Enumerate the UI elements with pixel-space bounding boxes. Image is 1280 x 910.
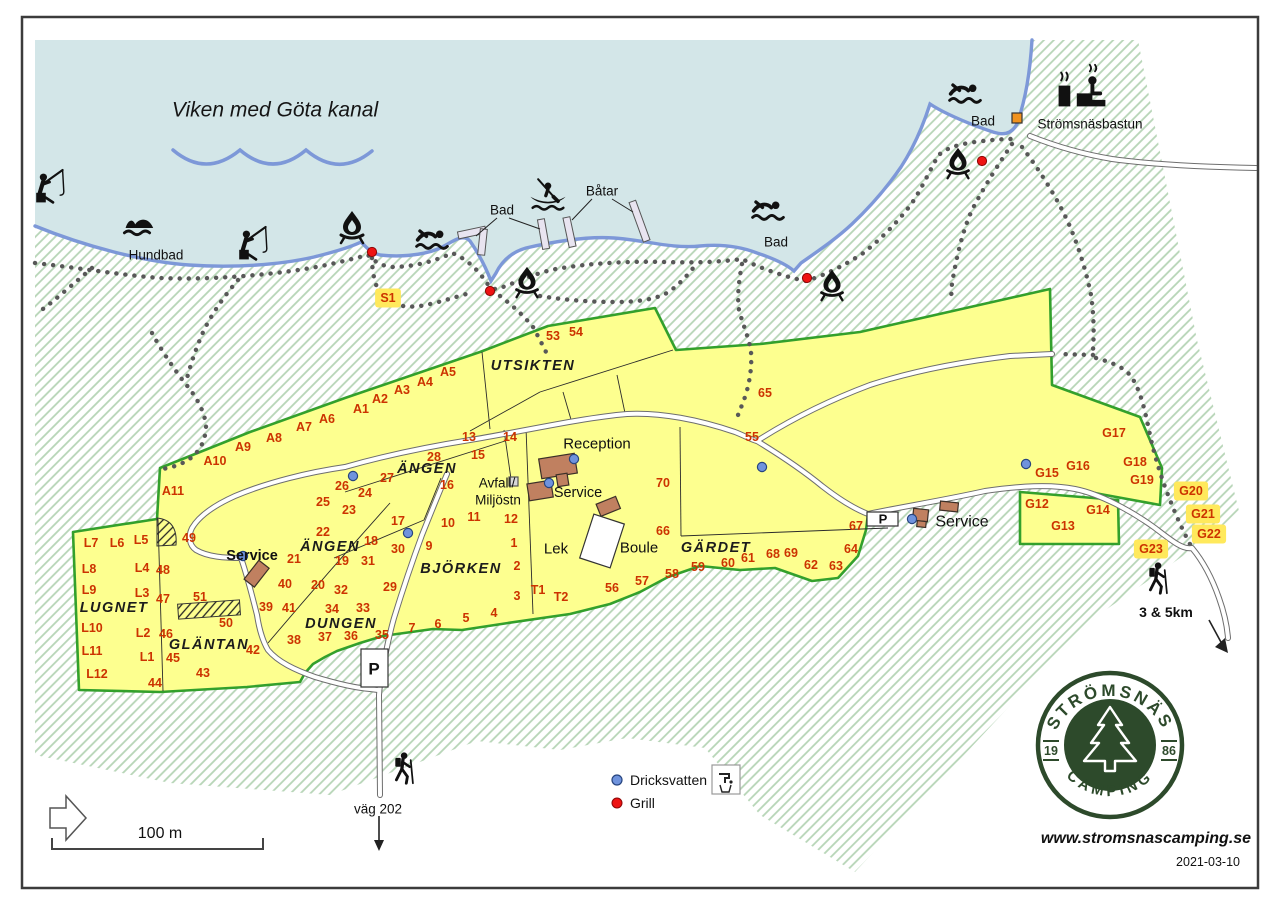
site-label-59: 59 — [691, 560, 705, 574]
scale-label: 100 m — [138, 825, 182, 842]
site-label-14: 14 — [503, 430, 517, 444]
site-label-38: 38 — [287, 633, 301, 647]
place-label: Avfall/ — [479, 476, 516, 491]
site-label-50: 50 — [219, 616, 233, 630]
site-label-55: 55 — [745, 430, 759, 444]
site-label-53: 53 — [546, 329, 560, 343]
legend-drinking-water-label: Dricksvatten — [630, 772, 707, 788]
site-label-56: 56 — [605, 581, 619, 595]
site-label-G20: G20 — [1179, 484, 1203, 498]
site-label-L5: L5 — [134, 533, 149, 547]
site-label-9: 9 — [426, 539, 433, 553]
site-label-62: 62 — [804, 558, 818, 572]
site-label-37: 37 — [318, 630, 332, 644]
site-label-25: 25 — [316, 495, 330, 509]
place-label: 3 & 5km — [1139, 604, 1193, 620]
place-label: Reception — [563, 436, 631, 453]
website-label: www.stromsnascamping.se — [1041, 830, 1251, 847]
site-label-33: 33 — [356, 601, 370, 615]
water-title: Viken med Göta kanal — [172, 99, 380, 122]
site-label-G19: G19 — [1130, 473, 1154, 487]
site-label-48: 48 — [156, 563, 170, 577]
date-label: 2021-03-10 — [1176, 855, 1240, 869]
site-label-A10: A10 — [204, 454, 227, 468]
site-label-70: 70 — [656, 476, 670, 490]
site-label-G17: G17 — [1102, 426, 1126, 440]
site-label-11: 11 — [467, 510, 480, 524]
site-label-40: 40 — [278, 577, 292, 591]
site-label-10: 10 — [441, 516, 455, 530]
site-label-L9: L9 — [82, 583, 97, 597]
site-label-1: 1 — [511, 536, 518, 550]
legend-drinking-water-dot — [612, 775, 622, 785]
site-label-64: 64 — [844, 542, 858, 556]
site-label-31: 31 — [361, 554, 375, 568]
site-label-51: 51 — [193, 590, 207, 604]
site-label-63: 63 — [829, 559, 843, 573]
site-label-68: 68 — [766, 547, 780, 561]
site-label-15: 15 — [471, 448, 485, 462]
site-label-58: 58 — [665, 567, 679, 581]
site-label-12: 12 — [504, 512, 518, 526]
drinking-water-marker — [757, 462, 766, 471]
site-label-19: 19 — [335, 554, 349, 568]
drinking-water-marker — [569, 454, 578, 463]
site-label-28: 28 — [427, 450, 441, 464]
bastun-marker — [1012, 113, 1022, 123]
site-label-36: 36 — [344, 629, 358, 643]
site-label-21: 21 — [287, 552, 301, 566]
place-label: Boule — [620, 540, 658, 557]
place-label: Lek — [544, 541, 569, 558]
drinking-water-marker — [403, 528, 412, 537]
area-label-LUGNET: LUGNET — [80, 600, 149, 616]
drinking-water-marker — [1021, 459, 1030, 468]
site-label-17: 17 — [391, 514, 405, 528]
logo-year-right: 86 — [1162, 744, 1176, 758]
site-label-T2: T2 — [554, 590, 569, 604]
place-label: P — [879, 512, 888, 527]
site-label-L11: L11 — [82, 644, 103, 658]
place-label: Bad — [971, 114, 995, 129]
site-label-A8: A8 — [266, 431, 282, 445]
place-label: Bad — [490, 203, 514, 218]
logo-year-left: 19 — [1044, 744, 1058, 758]
site-label-20: 20 — [311, 578, 325, 592]
place-label: väg 202 — [354, 802, 402, 817]
site-label-A7: A7 — [296, 420, 312, 434]
site-label-66: 66 — [656, 524, 670, 538]
site-label-32: 32 — [334, 583, 348, 597]
site-label-18: 18 — [364, 534, 378, 548]
site-label-G12: G12 — [1025, 497, 1049, 511]
site-label-39: 39 — [259, 600, 273, 614]
site-label-L3: L3 — [135, 586, 150, 600]
place-label: Hundbad — [129, 248, 184, 263]
site-label-30: 30 — [391, 542, 405, 556]
site-label-2: 2 — [514, 559, 521, 573]
legend-grill-label: Grill — [630, 795, 655, 811]
site-label-3: 3 — [514, 589, 521, 603]
site-label-43: 43 — [196, 666, 210, 680]
site-label-61: 61 — [741, 551, 755, 565]
site-label-L4: L4 — [135, 561, 150, 575]
site-label-22: 22 — [316, 525, 330, 539]
site-label-G23: G23 — [1139, 542, 1163, 556]
site-label-42: 42 — [246, 643, 260, 657]
campground-map-page: UTSIKTENÄNGENÄNGENLUGNETGLÄNTANDUNGENBJÖ… — [0, 0, 1280, 905]
site-label-47: 47 — [156, 592, 170, 606]
site-label-16: 16 — [440, 478, 454, 492]
site-label-57: 57 — [635, 574, 649, 588]
place-label: Service — [226, 548, 278, 564]
area-label-UTSIKTEN: UTSIKTEN — [491, 358, 576, 374]
site-label-34: 34 — [325, 602, 339, 616]
site-label-A2: A2 — [372, 392, 388, 406]
site-label-13: 13 — [462, 430, 476, 444]
grill-marker — [977, 156, 986, 165]
area-label-ÄNGEN: ÄNGEN — [299, 538, 360, 555]
site-label-L1: L1 — [140, 650, 155, 664]
service-building-right-3 — [917, 521, 927, 528]
place-label: Service — [935, 514, 988, 531]
site-label-26: 26 — [335, 479, 349, 493]
stromsnas-camping-logo: STRÖMSNÄS CAMPING 19 86 — [1038, 673, 1182, 817]
site-label-69: 69 — [784, 546, 798, 560]
site-label-G16: G16 — [1066, 459, 1090, 473]
site-label-41: 41 — [282, 601, 296, 615]
site-label-G13: G13 — [1051, 519, 1075, 533]
site-label-4: 4 — [491, 606, 498, 620]
site-label-46: 46 — [159, 627, 173, 641]
area-label-GLÄNTAN: GLÄNTAN — [169, 636, 249, 653]
site-label-G18: G18 — [1123, 455, 1147, 469]
site-label-A5: A5 — [440, 365, 456, 379]
site-label-L6: L6 — [110, 536, 125, 550]
grill-marker — [802, 273, 811, 282]
grill-marker — [367, 247, 376, 256]
site-label-6: 6 — [435, 617, 442, 631]
drinking-water-marker — [348, 471, 357, 480]
site-label-45: 45 — [166, 651, 180, 665]
site-label-A6: A6 — [319, 412, 335, 426]
site-label-G14: G14 — [1086, 503, 1110, 517]
site-label-S1: S1 — [380, 291, 395, 305]
site-label-L8: L8 — [82, 562, 97, 576]
grill-marker — [485, 286, 494, 295]
site-label-27: 27 — [380, 471, 394, 485]
site-label-L12: L12 — [86, 667, 108, 681]
site-label-L7: L7 — [84, 536, 99, 550]
site-label-L2: L2 — [136, 626, 151, 640]
area-label-BJÖRKEN: BJÖRKEN — [420, 560, 501, 577]
site-label-G15: G15 — [1035, 466, 1059, 480]
site-label-65: 65 — [758, 386, 772, 400]
site-label-67: 67 — [849, 519, 863, 533]
site-label-49: 49 — [182, 531, 196, 545]
place-label: P — [368, 660, 379, 679]
site-label-7: 7 — [409, 621, 416, 635]
drinking-water-marker — [907, 514, 916, 523]
site-label-L10: L10 — [81, 621, 103, 635]
site-label-A11: A11 — [162, 484, 184, 498]
site-label-G22: G22 — [1197, 527, 1221, 541]
drinking-water-marker — [544, 478, 553, 487]
service-building-right-1 — [940, 501, 959, 512]
site-label-44: 44 — [148, 676, 162, 690]
site-label-T1: T1 — [531, 583, 546, 597]
site-label-35: 35 — [375, 628, 389, 642]
site-label-A1: A1 — [353, 402, 369, 416]
place-label: Strömsnäsbastun — [1037, 117, 1142, 132]
site-label-23: 23 — [342, 503, 356, 517]
place-label: Bad — [764, 235, 788, 250]
site-label-A4: A4 — [417, 375, 433, 389]
site-label-54: 54 — [569, 325, 583, 339]
site-label-A3: A3 — [394, 383, 410, 397]
place-label: Service — [554, 485, 602, 501]
campground-map: UTSIKTENÄNGENÄNGENLUGNETGLÄNTANDUNGENBJÖ… — [0, 0, 1280, 905]
site-label-24: 24 — [358, 486, 372, 500]
area-label-DUNGEN: DUNGEN — [305, 616, 377, 632]
site-label-5: 5 — [463, 611, 470, 625]
site-label-60: 60 — [721, 556, 735, 570]
legend-grill-dot — [612, 798, 622, 808]
water-tap-icon — [712, 765, 740, 794]
place-label: Miljöstn — [475, 493, 521, 508]
site-label-G21: G21 — [1191, 507, 1215, 521]
place-label: Båtar — [586, 184, 619, 199]
site-label-A9: A9 — [235, 440, 251, 454]
site-label-29: 29 — [383, 580, 397, 594]
